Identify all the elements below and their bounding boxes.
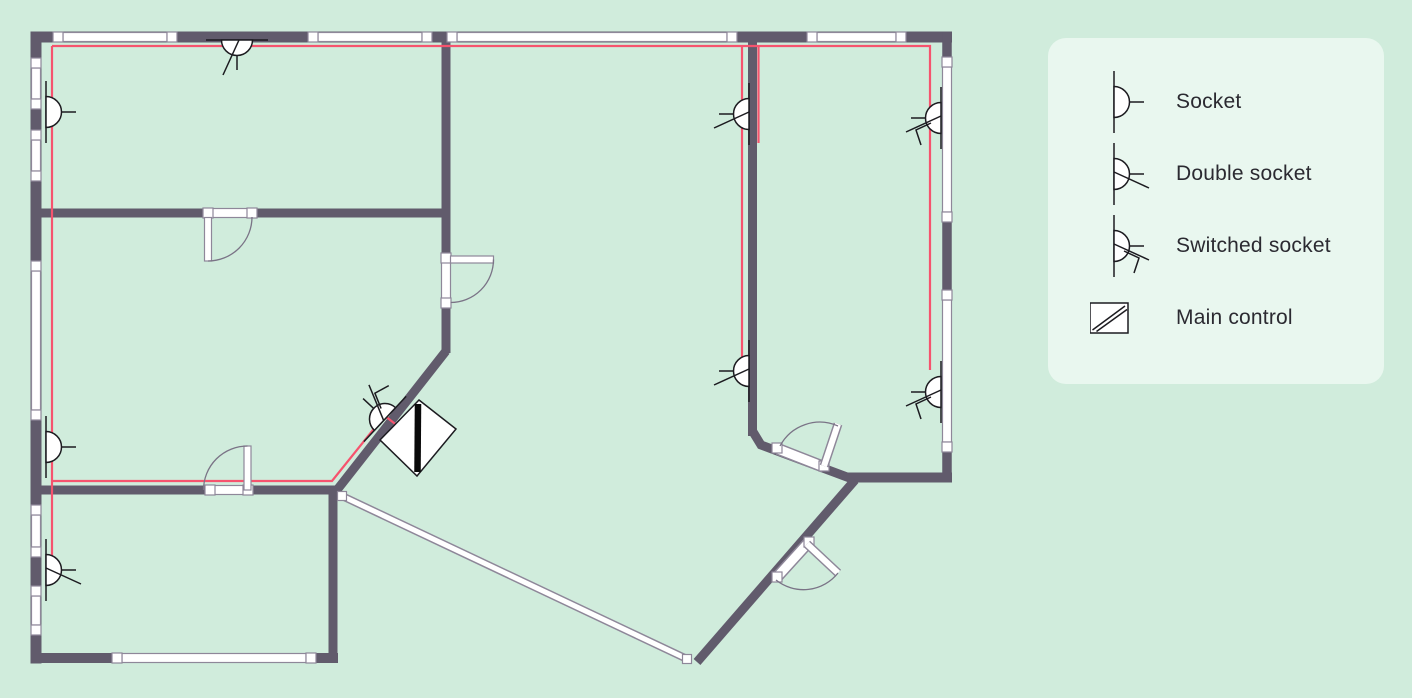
window-top (53, 32, 177, 42)
window-left (31, 505, 41, 557)
legend-panel: Socket Double socket Switched socket Mai… (1048, 38, 1384, 384)
wire-top-and-right-drop (52, 46, 930, 370)
door-right-room (772, 422, 838, 471)
window-left (31, 58, 41, 109)
wiring (52, 46, 930, 556)
window-top (308, 32, 432, 42)
door-lower-interior (204, 446, 254, 495)
door-middle-wall (441, 253, 494, 308)
window-left (31, 130, 41, 181)
legend-label-socket: Socket (1176, 90, 1241, 114)
legend-item-main-control: Main control (1048, 282, 1384, 354)
floor-plan-page: Socket Double socket Switched socket Mai… (0, 0, 1412, 698)
double-socket-icon (1090, 140, 1156, 208)
window-right (942, 57, 952, 222)
glass-wall (338, 492, 692, 664)
window-left (31, 261, 41, 420)
double-symbol (714, 83, 749, 145)
wire-bottom-branch (52, 415, 385, 481)
socket-icon (1090, 68, 1156, 136)
switched-symbol (906, 361, 941, 423)
window-right (942, 290, 952, 452)
window-top (447, 32, 737, 42)
socket-symbols (46, 40, 941, 601)
legend-label-switched-socket: Switched socket (1176, 234, 1331, 258)
legend-label-double-socket: Double socket (1176, 162, 1312, 186)
main-control-icon (1090, 284, 1156, 352)
legend-item-socket: Socket (1048, 66, 1384, 138)
legend-item-switched-socket: Switched socket (1048, 210, 1384, 282)
switched-symbol (906, 87, 941, 149)
socket-symbol (46, 81, 76, 143)
door-bottom-diagonal (772, 537, 838, 590)
window-top (807, 32, 906, 42)
window-left (31, 586, 41, 635)
window-bottom (112, 653, 316, 663)
door-upper-interior (203, 208, 257, 261)
switched-socket-icon (1090, 212, 1156, 280)
legend-item-double-socket: Double socket (1048, 138, 1384, 210)
legend-label-main-control: Main control (1176, 306, 1293, 330)
socket-symbol (46, 416, 76, 478)
double-symbol (714, 340, 749, 402)
